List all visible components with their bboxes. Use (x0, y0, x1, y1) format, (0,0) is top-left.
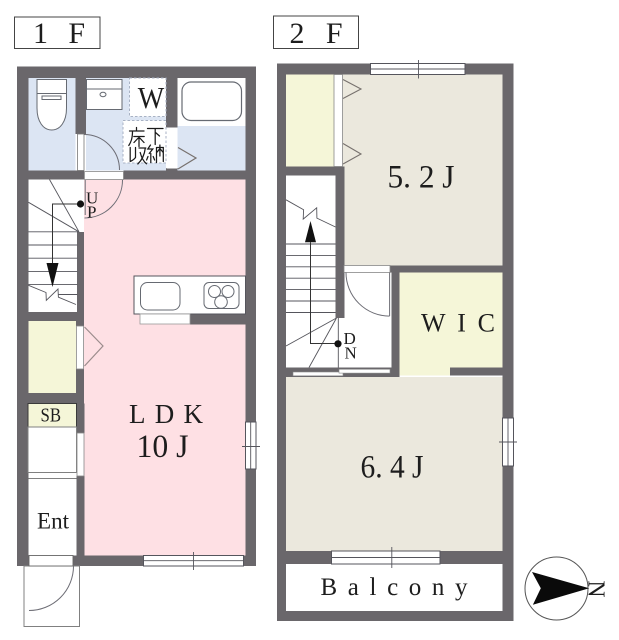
svg-text:N: N (583, 581, 609, 598)
svg-text:LDK: LDK (129, 399, 204, 429)
svg-text:2 F: 2 F (290, 17, 343, 50)
svg-text:5. 2 J: 5. 2 J (388, 160, 455, 196)
svg-text:N: N (345, 344, 357, 363)
svg-text:P: P (87, 203, 96, 222)
svg-text:WIC: WIC (421, 309, 495, 338)
svg-text:W: W (138, 80, 165, 115)
svg-text:10 J: 10 J (137, 429, 189, 465)
svg-text:SB: SB (41, 405, 62, 427)
svg-text:Ent: Ent (37, 509, 70, 534)
svg-text:1 F: 1 F (33, 17, 85, 50)
svg-text:6. 4 J: 6. 4 J (361, 450, 424, 486)
